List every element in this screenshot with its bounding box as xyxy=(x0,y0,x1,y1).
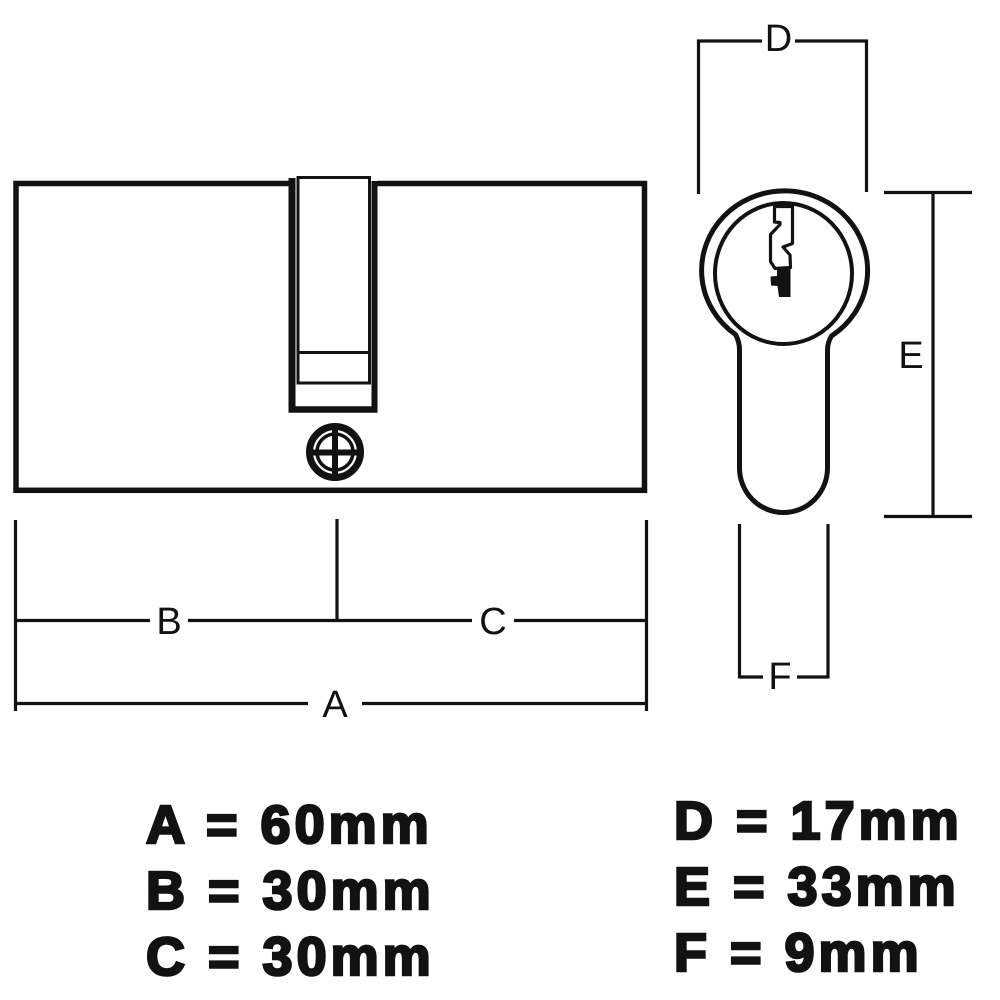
svg-text:F: F xyxy=(768,656,791,698)
svg-text:E = 33mm: E = 33mm xyxy=(674,857,960,917)
svg-text:A = 60mm: A = 60mm xyxy=(146,795,433,855)
svg-text:C = 30mm: C = 30mm xyxy=(146,927,435,987)
svg-text:F = 9mm: F = 9mm xyxy=(674,923,923,983)
svg-text:D = 17mm: D = 17mm xyxy=(674,791,963,851)
svg-text:B = 30mm: B = 30mm xyxy=(146,861,435,921)
svg-text:C: C xyxy=(479,601,506,643)
svg-text:B: B xyxy=(156,601,181,643)
svg-text:A: A xyxy=(322,684,348,726)
svg-text:E: E xyxy=(898,335,923,377)
svg-text:D: D xyxy=(765,18,792,60)
